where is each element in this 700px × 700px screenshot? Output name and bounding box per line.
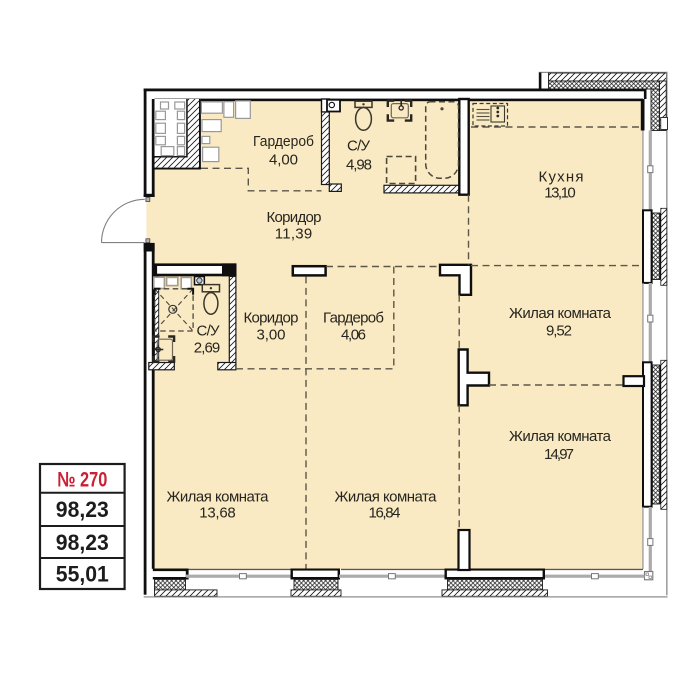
- svg-text:Гардероб: Гардероб: [253, 133, 314, 150]
- svg-text:3,00: 3,00: [257, 326, 286, 343]
- svg-text:4,06: 4,06: [341, 326, 366, 343]
- svg-text:4,98: 4,98: [346, 156, 372, 173]
- svg-text:98,23: 98,23: [56, 530, 109, 555]
- svg-text:Гардероб: Гардероб: [323, 310, 384, 327]
- svg-text:Кухня: Кухня: [539, 168, 584, 185]
- svg-text:4,00: 4,00: [269, 151, 298, 168]
- svg-text:Жилая комната: Жилая комната: [335, 488, 438, 505]
- svg-text:13,68: 13,68: [199, 504, 236, 521]
- svg-text:С/У: С/У: [197, 322, 220, 339]
- svg-text:14,97: 14,97: [544, 446, 574, 463]
- svg-text:Коридор: Коридор: [244, 310, 299, 327]
- svg-text:Жилая комната: Жилая комната: [167, 488, 270, 505]
- svg-text:11,39: 11,39: [275, 226, 313, 243]
- svg-text:13,10: 13,10: [544, 184, 576, 201]
- svg-text:98,23: 98,23: [56, 497, 109, 522]
- svg-text:Жилая комната: Жилая комната: [509, 305, 612, 322]
- svg-text:С/У: С/У: [347, 138, 370, 155]
- svg-text:16,84: 16,84: [369, 504, 401, 521]
- svg-text:Коридор: Коридор: [267, 209, 322, 226]
- svg-text:55,01: 55,01: [56, 562, 109, 587]
- svg-text:2,69: 2,69: [194, 339, 221, 356]
- svg-text:9,52: 9,52: [546, 322, 572, 339]
- svg-text:Жилая комната: Жилая комната: [509, 428, 612, 445]
- svg-text:№ 270: № 270: [57, 469, 107, 492]
